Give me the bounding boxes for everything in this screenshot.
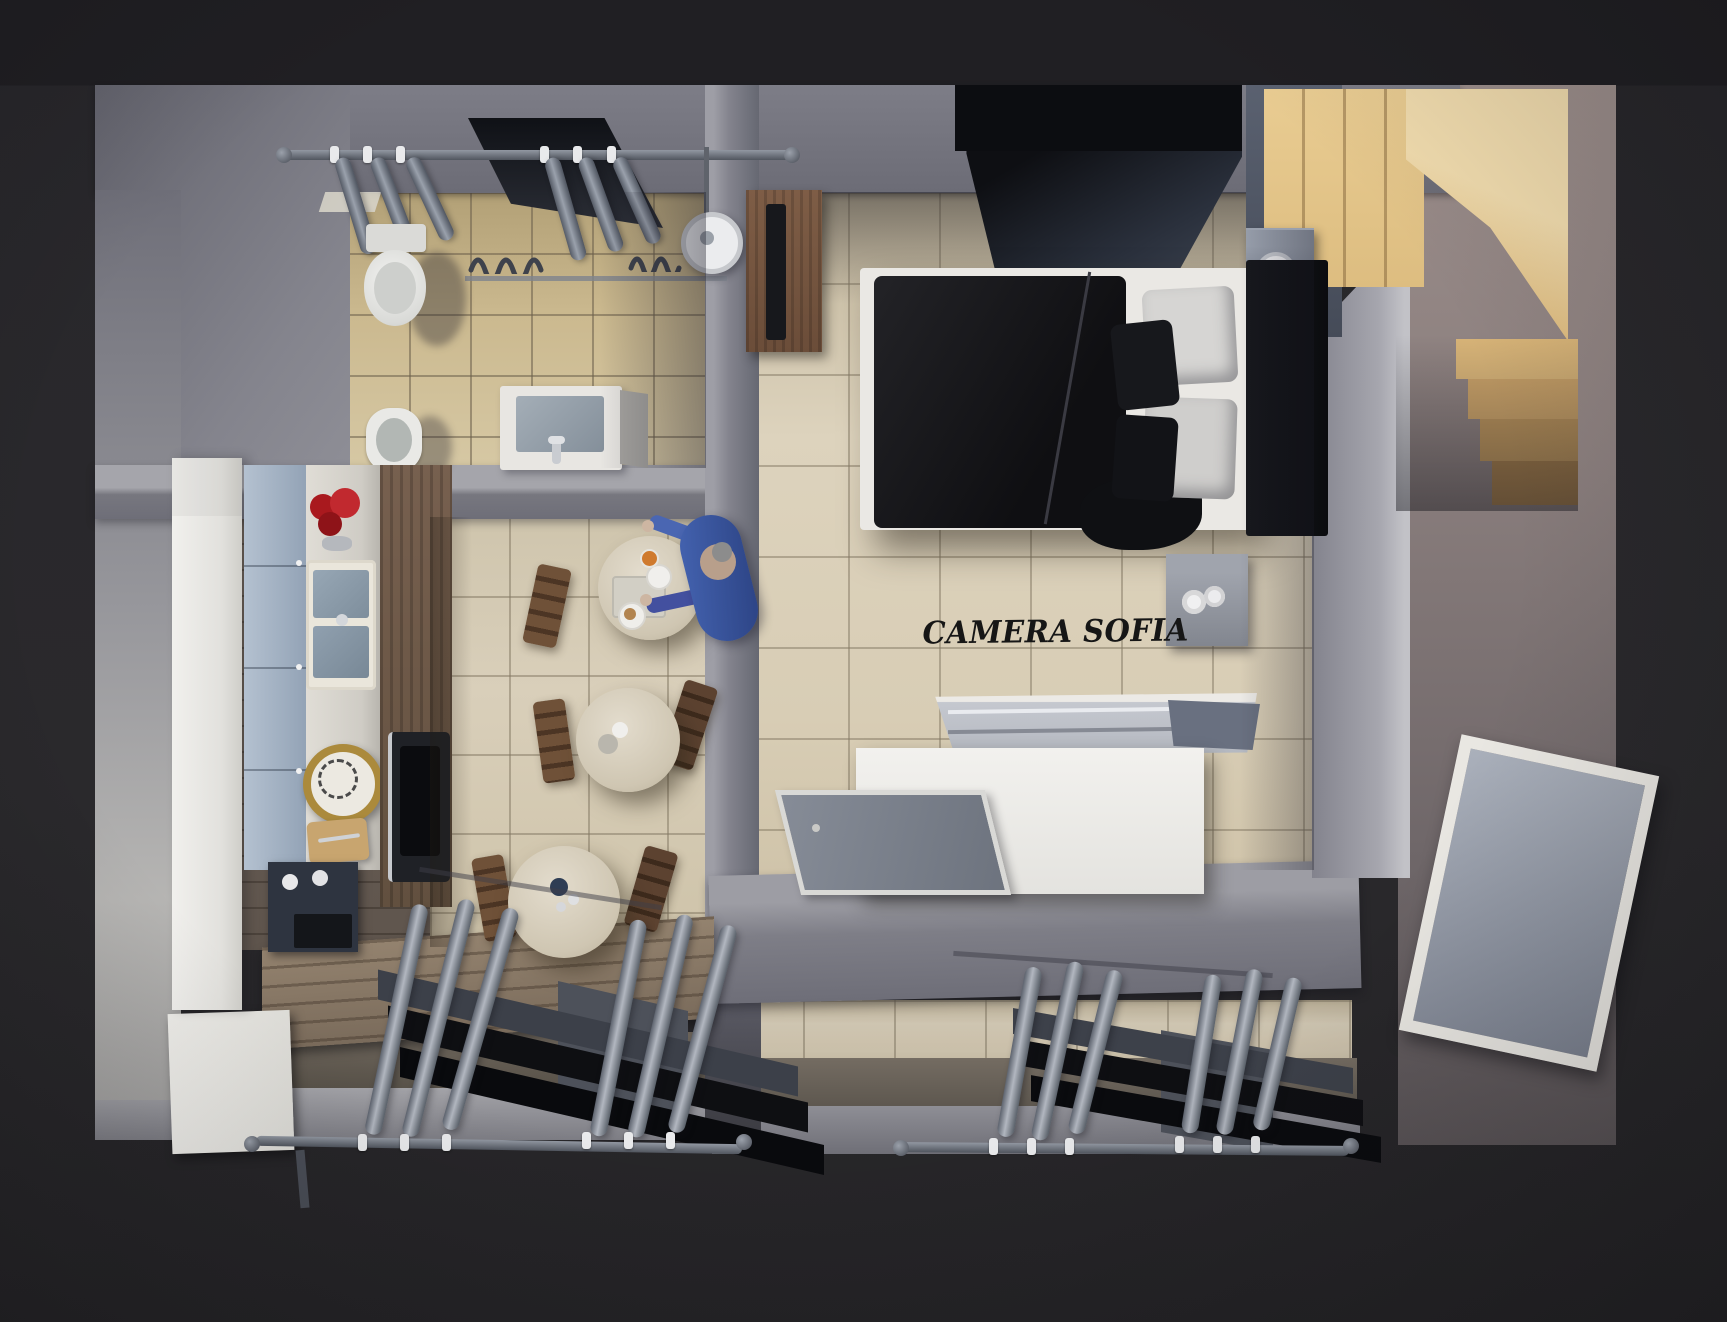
vase: [322, 536, 352, 551]
window-right: [893, 948, 1373, 1208]
juice-glass: [640, 549, 659, 568]
kitchen-faucet-icon: [336, 614, 348, 626]
person-hand: [640, 594, 652, 606]
rod-clip: [363, 146, 372, 163]
rod-finial: [276, 147, 292, 163]
hook-rail: [465, 276, 727, 281]
toilet-tank: [366, 224, 426, 252]
person-hair: [712, 542, 732, 562]
double-bed: [858, 260, 1328, 542]
room-label: CAMERA SOFIA: [922, 613, 1189, 652]
stair-step: [1468, 379, 1578, 419]
rod-clip: [989, 1138, 998, 1155]
stair-step: [1480, 419, 1578, 461]
left-wall: [95, 190, 181, 1100]
shower-head-center: [700, 231, 714, 245]
window-left: [238, 878, 763, 1188]
rod-clip: [358, 1134, 367, 1151]
tv: [766, 204, 786, 340]
stair-winder: [1406, 89, 1568, 341]
towel-roll: [1204, 586, 1225, 607]
rod-clip: [1175, 1136, 1184, 1153]
bathroom-curtain-rod: [285, 150, 790, 160]
rod-bracket: [295, 1150, 309, 1209]
rod-clip: [1065, 1138, 1074, 1155]
faucet-icon: [548, 436, 565, 444]
stair-step: [1456, 339, 1578, 379]
cutting-board: [306, 817, 369, 864]
kitchen-sink-basin: [313, 570, 369, 618]
rod-finial: [1343, 1138, 1359, 1154]
toilet-seat: [374, 262, 416, 314]
food-icon: [624, 608, 636, 620]
headboard: [1246, 260, 1328, 536]
rod-clip: [442, 1134, 451, 1151]
rod-finial: [784, 147, 800, 163]
stair-step: [1492, 461, 1578, 505]
rod-finial: [244, 1136, 260, 1152]
cushion: [1110, 319, 1181, 411]
bed-duvet: [874, 276, 1126, 528]
curtain-hooks-icon: [468, 248, 546, 274]
rod-clip: [624, 1132, 633, 1149]
rod-clip: [1251, 1136, 1260, 1153]
rod-finial: [736, 1134, 752, 1150]
cabinet-knob-icon: [296, 664, 302, 670]
plate: [598, 734, 618, 754]
flower: [318, 512, 342, 536]
cabinet-knob-icon: [296, 768, 302, 774]
dining-table: [576, 688, 680, 792]
rod-finial: [893, 1140, 909, 1156]
mat-handle-icon: [812, 824, 820, 832]
flower-bouquet: [308, 488, 366, 554]
sink-side: [620, 390, 648, 468]
white-chest-inner: [1168, 700, 1260, 750]
shower-head: [681, 212, 743, 274]
kitchen-sink-basin: [313, 626, 369, 678]
cushion: [1111, 414, 1179, 502]
bidet-basin: [376, 418, 412, 462]
rod-clip: [582, 1132, 591, 1149]
rod-clip: [1027, 1138, 1036, 1155]
floor-mat: [775, 790, 1011, 895]
person-hand: [642, 520, 654, 532]
floorplan-render: CAMERA SOFIA: [0, 0, 1727, 1322]
rod-clip: [400, 1134, 409, 1151]
oven-window: [400, 746, 440, 856]
gold-clock-face: [318, 759, 358, 799]
rod-clip: [1213, 1136, 1222, 1153]
rod-clip: [666, 1132, 675, 1149]
wardrobe-top: [955, 85, 1242, 151]
towel-roll: [1182, 590, 1206, 614]
kitchen-tall-cabinet: [172, 458, 242, 1010]
rod-clip: [396, 146, 405, 163]
cabinet-knob-icon: [296, 560, 302, 566]
